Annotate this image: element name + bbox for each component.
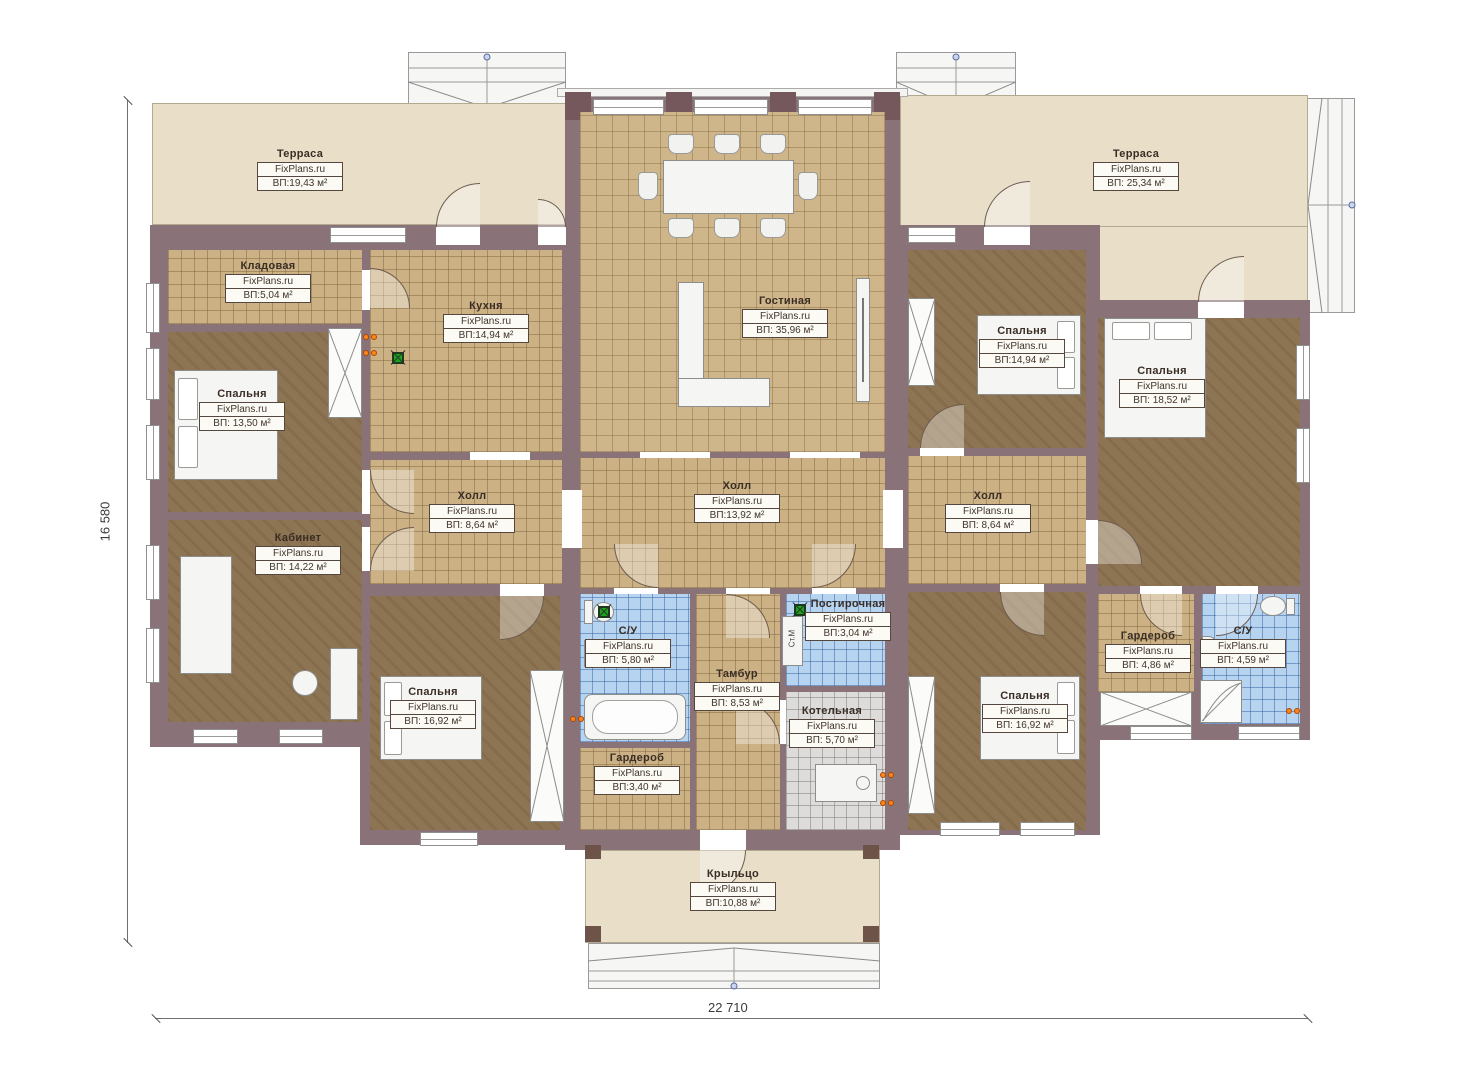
room-name: Спальня: [1107, 365, 1217, 377]
toilet: [1286, 598, 1295, 615]
window: [420, 832, 478, 846]
room-name: Тамбур: [682, 668, 792, 680]
window: [146, 628, 160, 683]
wardrobe-cabinet: [908, 298, 935, 386]
brand-text: FixPlans.ru: [946, 505, 1030, 519]
wardrobe-cabinet: [1100, 692, 1192, 726]
room-area: ВП: 4,86 м²: [1106, 659, 1190, 672]
room-info-box: FixPlans.ruВП:14,94 м²: [979, 339, 1065, 368]
window: [193, 729, 238, 744]
socket-icon: [880, 800, 894, 806]
room-name: С/У: [1188, 625, 1298, 637]
door-opening: [1000, 584, 1044, 592]
brand-text: FixPlans.ru: [1106, 645, 1190, 659]
window: [279, 729, 323, 744]
room-info-box: FixPlans.ruВП: 4,86 м²: [1105, 644, 1191, 673]
room-label-office: Кабинет FixPlans.ruВП: 14,22 м²: [243, 532, 353, 575]
socket-icon: [570, 716, 584, 722]
office-sofa: [180, 556, 232, 674]
room-name: Гардероб: [1093, 630, 1203, 642]
window: [146, 545, 160, 600]
room-area: ВП:10,88 м²: [691, 897, 775, 910]
ceiling-light-icon: [598, 606, 610, 618]
toilet: [584, 600, 593, 624]
brand-text: FixPlans.ru: [695, 683, 779, 697]
room-info-box: FixPlans.ruВП: 13,50 м²: [199, 402, 285, 431]
room-label-bathroom-right: С/У FixPlans.ruВП: 4,59 м²: [1188, 625, 1298, 668]
room-info-box: FixPlans.ruВП: 35,96 м²: [742, 309, 828, 338]
room-info-box: FixPlans.ruВП:19,43 м²: [257, 162, 343, 191]
window: [1020, 822, 1075, 836]
wardrobe-cabinet: [530, 670, 564, 822]
window: [1130, 726, 1192, 740]
brand-text: FixPlans.ru: [391, 701, 475, 715]
dining-table: [663, 160, 794, 214]
room-name: Котельная: [777, 705, 887, 717]
boiler-dial: [856, 776, 870, 790]
pillow: [178, 426, 198, 468]
window: [1296, 428, 1310, 483]
roof-edge-band: [557, 88, 908, 97]
room-info-box: FixPlans.ruВП: 16,92 м²: [982, 704, 1068, 733]
window: [146, 425, 160, 480]
room-name: Гардероб: [582, 752, 692, 764]
room-info-box: FixPlans.ruВП: 4,59 м²: [1200, 639, 1286, 668]
room-name: Спальня: [378, 686, 488, 698]
room-label-hall-right: Холл FixPlans.ruВП: 8,64 м²: [933, 490, 1043, 533]
room-info-box: FixPlans.ruВП: 8,53 м²: [694, 682, 780, 711]
room-info-box: FixPlans.ruВП:5,04 м²: [225, 274, 311, 303]
door-opening: [362, 470, 370, 514]
dimension-height-label: 16 580: [97, 502, 112, 542]
room-label-wardrobe-right: Гардероб FixPlans.ruВП: 4,86 м²: [1093, 630, 1203, 673]
room-label-bedroom-sw: Спальня FixPlans.ruВП: 16,92 м²: [378, 686, 488, 729]
doorway-opening: [790, 452, 860, 458]
room-name: Кладовая: [213, 260, 323, 272]
doorway-opening: [640, 452, 710, 458]
room-name: Холл: [682, 480, 792, 492]
room-area: ВП: 8,64 м²: [430, 519, 514, 532]
brand-text: FixPlans.ru: [806, 613, 890, 627]
door-opening: [726, 588, 770, 594]
room-area: ВП: 5,70 м²: [790, 734, 874, 747]
room-info-box: FixPlans.ruВП: 18,52 м²: [1119, 379, 1205, 408]
room-area: ВП:5,04 м²: [226, 289, 310, 302]
room-area: ВП:3,40 м²: [595, 781, 679, 794]
socket-icon: [880, 772, 894, 778]
room-label-kitchen: Кухня FixPlans.ruВП:14,94 м²: [431, 300, 541, 343]
room-label-vestibule: Тамбур FixPlans.ruВП: 8,53 м²: [682, 668, 792, 711]
doorway-opening: [470, 452, 530, 460]
room-info-box: FixPlans.ruВП:13,92 м²: [694, 494, 780, 523]
room-name: Кабинет: [243, 532, 353, 544]
chair: [638, 172, 658, 200]
room-info-box: FixPlans.ruВП: 8,64 м²: [429, 504, 515, 533]
room-area: ВП: 13,50 м²: [200, 417, 284, 430]
socket-icon: [1286, 708, 1300, 714]
door-opening-front: [700, 830, 746, 850]
brand-text: FixPlans.ru: [980, 340, 1064, 354]
room-label-bathroom-left: С/У FixPlans.ruВП: 5,80 м²: [573, 625, 683, 668]
chair: [760, 218, 786, 238]
room-info-box: FixPlans.ruВП:3,04 м²: [805, 612, 891, 641]
room-label-boiler-room: Котельная FixPlans.ruВП: 5,70 м²: [777, 705, 887, 748]
dimension-line-vertical: [127, 100, 128, 943]
room-info-box: FixPlans.ruВП: 14,22 м²: [255, 546, 341, 575]
brand-text: FixPlans.ru: [258, 163, 342, 177]
room-info-box: FixPlans.ruВП: 5,80 м²: [585, 639, 671, 668]
brand-text: FixPlans.ru: [444, 315, 528, 329]
porch-post: [585, 845, 601, 859]
door-opening: [614, 588, 658, 594]
room-area: ВП: 16,92 м²: [391, 715, 475, 728]
porch-post: [863, 926, 879, 942]
roof-gable-right-icon: [1306, 98, 1360, 313]
door-opening: [1086, 520, 1098, 564]
dimension-tick: [123, 96, 132, 105]
brand-text: FixPlans.ru: [226, 275, 310, 289]
room-info-box: FixPlans.ruВП: 16,92 м²: [390, 700, 476, 729]
room-label-storage: Кладовая FixPlans.ruВП:5,04 м²: [213, 260, 323, 303]
brand-text: FixPlans.ru: [430, 505, 514, 519]
room-name: Спальня: [970, 690, 1080, 702]
brand-text: FixPlans.ru: [1120, 380, 1204, 394]
door-opening: [538, 227, 566, 245]
door-opening: [1140, 586, 1182, 594]
door-opening: [500, 584, 544, 596]
room-info-box: FixPlans.ruВП:3,40 м²: [594, 766, 680, 795]
room-area: ВП: 16,92 м²: [983, 719, 1067, 732]
room-area: ВП: 14,22 м²: [256, 561, 340, 574]
room-info-box: FixPlans.ruВП: 25,34 м²: [1093, 162, 1179, 191]
chair: [668, 134, 694, 154]
room-name: Холл: [417, 490, 527, 502]
room-label-living-room: Гостиная FixPlans.ruВП: 35,96 м²: [730, 295, 840, 338]
socket-icon: [363, 350, 377, 356]
sofa: [678, 378, 770, 407]
room-label-terrace-right: Терраса FixPlans.ruВП: 25,34 м²: [1081, 148, 1191, 191]
room-name: Крыльцо: [678, 868, 788, 880]
room-area: ВП: 4,59 м²: [1201, 654, 1285, 667]
room-area: ВП: 35,96 м²: [743, 324, 827, 337]
room-info-box: FixPlans.ruВП:10,88 м²: [690, 882, 776, 911]
window: [798, 99, 872, 115]
room-area: ВП: 25,34 м²: [1094, 177, 1178, 190]
socket-icon: [363, 334, 377, 340]
doorway-opening: [562, 490, 582, 548]
corner-shower: [1200, 680, 1242, 723]
room-label-wardrobe-center: Гардероб FixPlans.ruВП:3,40 м²: [582, 752, 692, 795]
floor-plan: Ст.М 16 580 22 710 Терраса FixPlans.ruВП…: [0, 0, 1474, 1080]
room-area: ВП:14,94 м²: [980, 354, 1064, 367]
room-area: ВП: 5,80 м²: [586, 654, 670, 667]
room-name: Гостиная: [730, 295, 840, 307]
door-opening: [920, 448, 964, 456]
pillow: [1154, 322, 1192, 340]
wardrobe-cabinet: [328, 328, 362, 418]
doorway-opening: [883, 490, 903, 548]
door-opening: [1198, 302, 1244, 318]
brand-text: FixPlans.ru: [983, 705, 1067, 719]
door-opening: [812, 588, 856, 594]
brand-text: FixPlans.ru: [200, 403, 284, 417]
dimension-line-horizontal: [155, 1018, 1308, 1019]
dimension-tick: [123, 938, 132, 947]
door-opening: [984, 227, 1030, 245]
chair: [714, 218, 740, 238]
window: [1238, 726, 1300, 740]
room-name: Терраса: [245, 148, 355, 160]
room-label-terrace-left: Терраса FixPlans.ruВП:19,43 м²: [245, 148, 355, 191]
desk-chair: [292, 670, 318, 696]
brand-text: FixPlans.ru: [1201, 640, 1285, 654]
room-area: ВП:13,92 м²: [695, 509, 779, 522]
brand-text: FixPlans.ru: [586, 640, 670, 654]
brand-text: FixPlans.ru: [790, 720, 874, 734]
wardrobe-cabinet: [908, 676, 935, 814]
room-area: ВП:19,43 м²: [258, 177, 342, 190]
brand-text: FixPlans.ru: [256, 547, 340, 561]
room-name: Холл: [933, 490, 1043, 502]
door-opening: [362, 527, 370, 571]
room-name: Спальня: [967, 325, 1077, 337]
room-area: ВП:3,04 м²: [806, 627, 890, 640]
porch-post: [863, 845, 879, 859]
chair: [714, 134, 740, 154]
brand-text: FixPlans.ru: [743, 310, 827, 324]
room-label-bedroom-e: Спальня FixPlans.ruВП: 18,52 м²: [1107, 365, 1217, 408]
door-opening: [362, 270, 370, 310]
room-info-box: FixPlans.ruВП: 5,70 м²: [789, 719, 875, 748]
room-label-porch: Крыльцо FixPlans.ruВП:10,88 м²: [678, 868, 788, 911]
room-label-bedroom-nw: Спальня FixPlans.ruВП: 13,50 м²: [187, 388, 297, 431]
window: [908, 227, 956, 243]
room-name: С/У: [573, 625, 683, 637]
room-area: ВП:14,94 м²: [444, 329, 528, 342]
desk: [330, 648, 358, 720]
room-label-hall-center: Холл FixPlans.ruВП:13,92 м²: [682, 480, 792, 523]
room-label-bedroom-ne: Спальня FixPlans.ruВП:14,94 м²: [967, 325, 1077, 368]
room-name: Постирочная: [793, 598, 903, 610]
window: [593, 99, 664, 115]
brand-text: FixPlans.ru: [695, 495, 779, 509]
room-info-box: FixPlans.ruВП: 8,64 м²: [945, 504, 1031, 533]
room-area: ВП: 18,52 м²: [1120, 394, 1204, 407]
porch-post: [585, 926, 601, 942]
brand-text: FixPlans.ru: [691, 883, 775, 897]
room-label-hall-left: Холл FixPlans.ruВП: 8,64 м²: [417, 490, 527, 533]
tv: [862, 298, 864, 382]
window: [1296, 345, 1310, 400]
bathtub-inner: [592, 700, 678, 734]
room-name: Спальня: [187, 388, 297, 400]
room-name: Терраса: [1081, 148, 1191, 160]
room-label-bedroom-se: Спальня FixPlans.ruВП: 16,92 м²: [970, 690, 1080, 733]
chair: [798, 172, 818, 200]
door-opening: [1216, 586, 1258, 594]
dimension-width-label: 22 710: [708, 1000, 748, 1015]
room-area: ВП: 8,53 м²: [695, 697, 779, 710]
brand-text: FixPlans.ru: [1094, 163, 1178, 177]
terrace-left-floor: [152, 103, 568, 225]
ceiling-light-icon: [392, 352, 404, 364]
chair: [668, 218, 694, 238]
window: [694, 99, 768, 115]
room-name: Кухня: [431, 300, 541, 312]
toilet-bowl: [1260, 596, 1286, 616]
roof-gable-porch-icon: [588, 943, 880, 991]
room-area: ВП: 8,64 м²: [946, 519, 1030, 532]
room-info-box: FixPlans.ruВП:14,94 м²: [443, 314, 529, 343]
pillow: [1112, 322, 1150, 340]
window: [146, 348, 160, 400]
room-label-laundry: Постирочная FixPlans.ruВП:3,04 м²: [793, 598, 903, 641]
door-opening: [436, 227, 480, 245]
window: [330, 227, 406, 243]
window: [146, 283, 160, 333]
chair: [760, 134, 786, 154]
brand-text: FixPlans.ru: [595, 767, 679, 781]
window: [940, 822, 1000, 836]
